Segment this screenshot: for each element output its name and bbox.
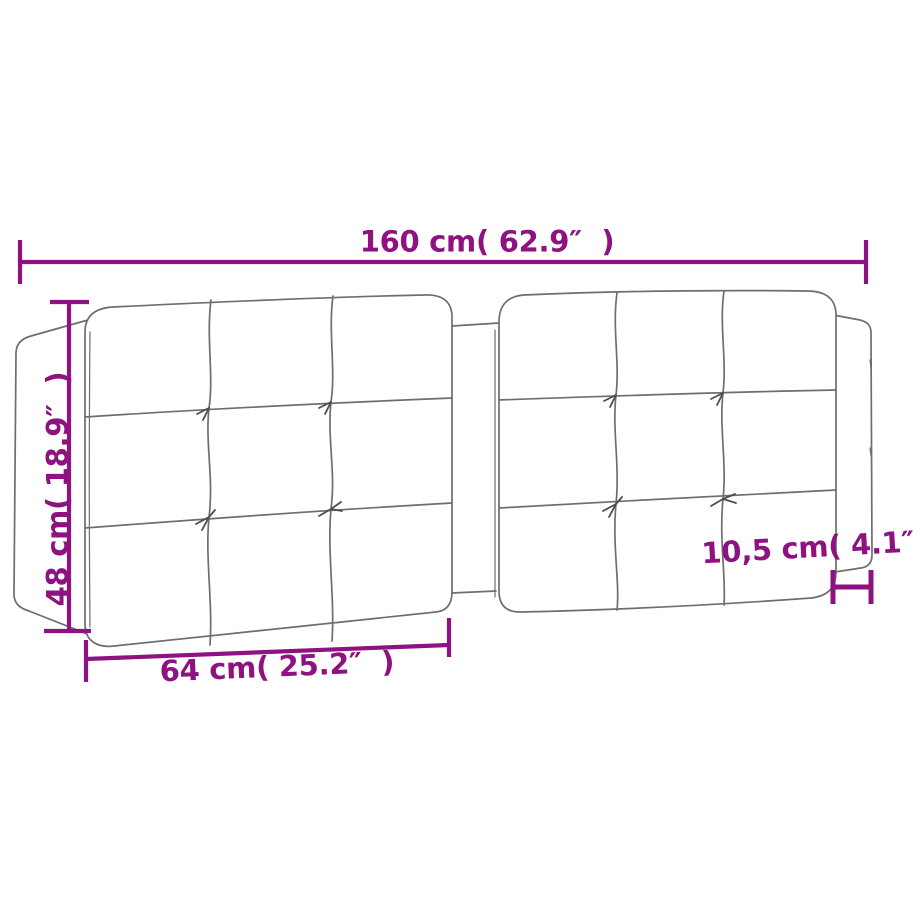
- total-width-dimension-label: 160 cm( 62.9″ ): [360, 228, 615, 257]
- height-dimension-label: 48 cm( 18.9″ ): [44, 372, 73, 607]
- strip-top-edge: [452, 323, 499, 326]
- left-panel-outline: [85, 295, 452, 646]
- diagram-canvas: 160 cm( 62.9″ ) 48 cm( 18.9″ ) 64 cm( 25…: [0, 0, 920, 920]
- left-cushion-panel: [85, 295, 452, 646]
- center-connector-strip: [452, 323, 499, 593]
- strip-bottom-edge: [452, 591, 496, 593]
- headboard-illustration: [0, 0, 920, 920]
- depth-dimension-line: [833, 570, 871, 604]
